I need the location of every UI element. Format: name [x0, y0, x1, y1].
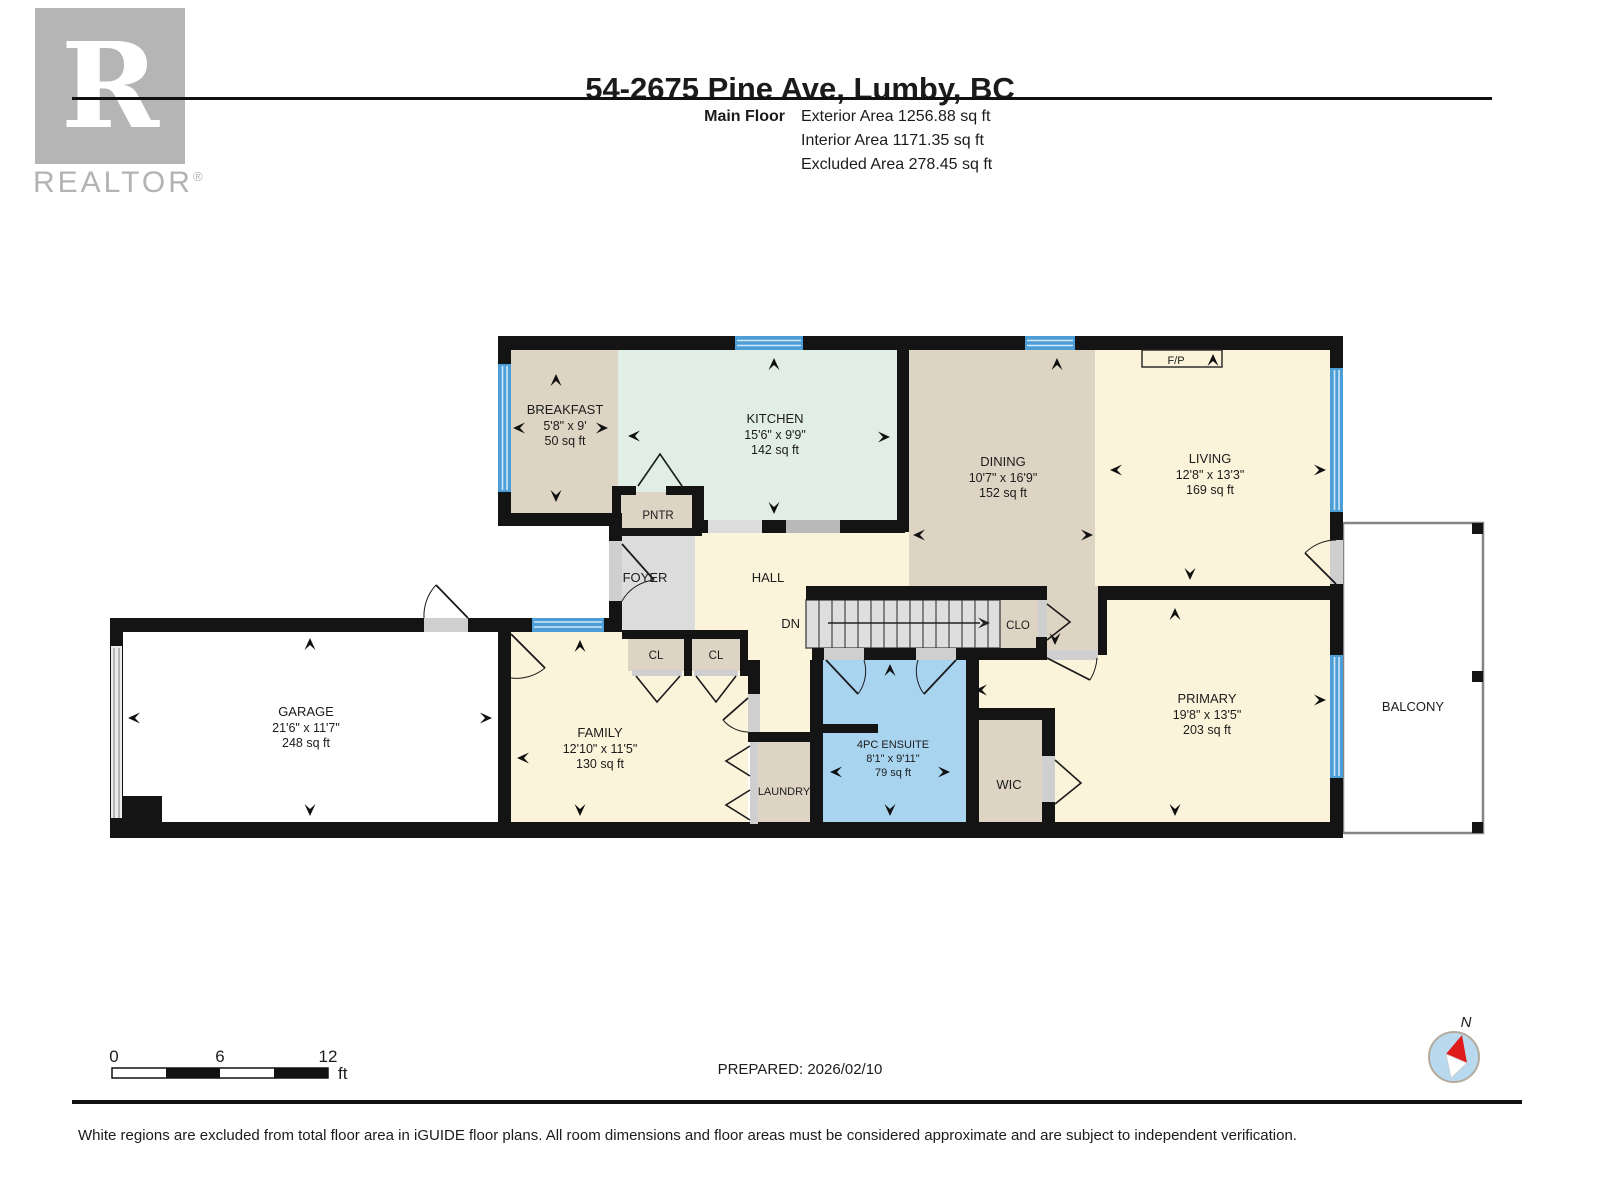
primary-name: PRIMARY: [1178, 691, 1237, 706]
laundry-label: LAUNDRY: [758, 786, 811, 798]
compass-icon: N: [1429, 1014, 1479, 1082]
family-area: 130 sq ft: [576, 757, 624, 771]
garage-door: [111, 646, 122, 818]
ensuite-area: 79 sq ft: [875, 767, 911, 779]
scale-end: 12: [319, 1047, 338, 1066]
balcony-label: BALCONY: [1382, 699, 1444, 714]
scale-bar: 0 6 12 ft: [109, 1047, 347, 1083]
primary-corridor-fill: [979, 658, 1045, 710]
scale-zero: 0: [109, 1047, 118, 1066]
dining-area: 152 sq ft: [979, 486, 1027, 500]
dining-name: DINING: [980, 454, 1026, 469]
hall-label: HALL: [752, 570, 785, 585]
stairs-dn-label: DN: [781, 616, 800, 631]
ensuite-door-opening-left: [824, 648, 864, 660]
corridor-opening: [748, 694, 760, 732]
living-name: LIVING: [1189, 451, 1232, 466]
floor-plan-drawing: F/P BREAKFAST 5'8" x 9' 50 sq f: [0, 0, 1600, 1200]
fireplace: F/P: [1142, 350, 1222, 367]
closet-a-label: CL: [649, 650, 664, 662]
floor-plan-page: R REALTOR® 54-2675 Pine Ave, Lumby, BC M…: [0, 0, 1600, 1200]
breakfast-area: 50 sq ft: [545, 434, 587, 448]
primary-area: 203 sq ft: [1183, 723, 1231, 737]
kitchen-area: 142 sq ft: [751, 443, 799, 457]
living-area: 169 sq ft: [1186, 483, 1234, 497]
kitchen-name: KITCHEN: [746, 411, 803, 426]
front-door-opening: [609, 541, 622, 601]
kitchen-dims: 15'6" x 9'9": [744, 428, 806, 442]
kitchen-opening-a: [708, 520, 762, 533]
dining-dims: 10'7" x 16'9": [969, 471, 1038, 485]
closet-a-sill: [632, 670, 682, 676]
ensuite-dims: 8'1" x 9'11": [866, 753, 919, 765]
clo-opening: [1038, 600, 1047, 637]
footer-divider: [72, 1100, 1522, 1104]
scale-unit: ft: [338, 1064, 348, 1083]
breakfast-window: [498, 364, 511, 492]
closet-b-label: CL: [709, 650, 724, 662]
closet-b-sill: [694, 670, 738, 676]
balcony-structure: [1343, 523, 1483, 833]
kitchen-opening-b: [786, 520, 840, 533]
ensuite-door-opening-right: [916, 648, 956, 660]
hall-corridor-fill: [756, 648, 812, 734]
family-dims: 12'10" x 11'5": [563, 742, 638, 756]
pantry-label: PNTR: [642, 510, 673, 522]
foyer-label: FOYER: [623, 570, 668, 585]
prepared-date: PREPARED: 2026/02/10: [718, 1061, 883, 1078]
breakfast-name: BREAKFAST: [527, 402, 604, 417]
dining-window: [1025, 336, 1075, 350]
primary-door-opening: [1047, 650, 1098, 660]
vestibule-fill: [1043, 586, 1098, 652]
wic-fill: [979, 718, 1043, 824]
porch-door-opening: [424, 618, 468, 632]
family-name: FAMILY: [577, 725, 623, 740]
garage-name: GARAGE: [278, 704, 334, 719]
garage-area: 248 sq ft: [282, 736, 330, 750]
fireplace-label: F/P: [1167, 355, 1184, 367]
primary-window: [1330, 655, 1343, 778]
living-dims: 12'8" x 13'3": [1176, 468, 1245, 482]
family-window: [532, 618, 604, 632]
staircase: [806, 600, 1000, 648]
balcony-door-opening: [1330, 540, 1343, 584]
disclaimer-text: White regions are excluded from total fl…: [78, 1127, 1538, 1144]
garage-dims: 21'6" x 11'7": [272, 721, 340, 735]
scale-mid: 6: [215, 1047, 224, 1066]
clo-label: CLO: [1006, 620, 1030, 632]
ensuite-name: 4PC ENSUITE: [857, 739, 929, 751]
breakfast-dims: 5'8" x 9': [543, 419, 586, 433]
laundry-opening: [750, 742, 758, 824]
kitchen-window: [735, 336, 803, 350]
porch-door: [424, 585, 468, 618]
living-window: [1330, 368, 1343, 512]
laundry-fill: [756, 740, 812, 824]
wic-label: WIC: [996, 777, 1021, 792]
compass-north-label: N: [1461, 1014, 1472, 1031]
primary-dims: 19'8" x 13'5": [1173, 708, 1242, 722]
wic-door-opening: [1042, 756, 1055, 802]
